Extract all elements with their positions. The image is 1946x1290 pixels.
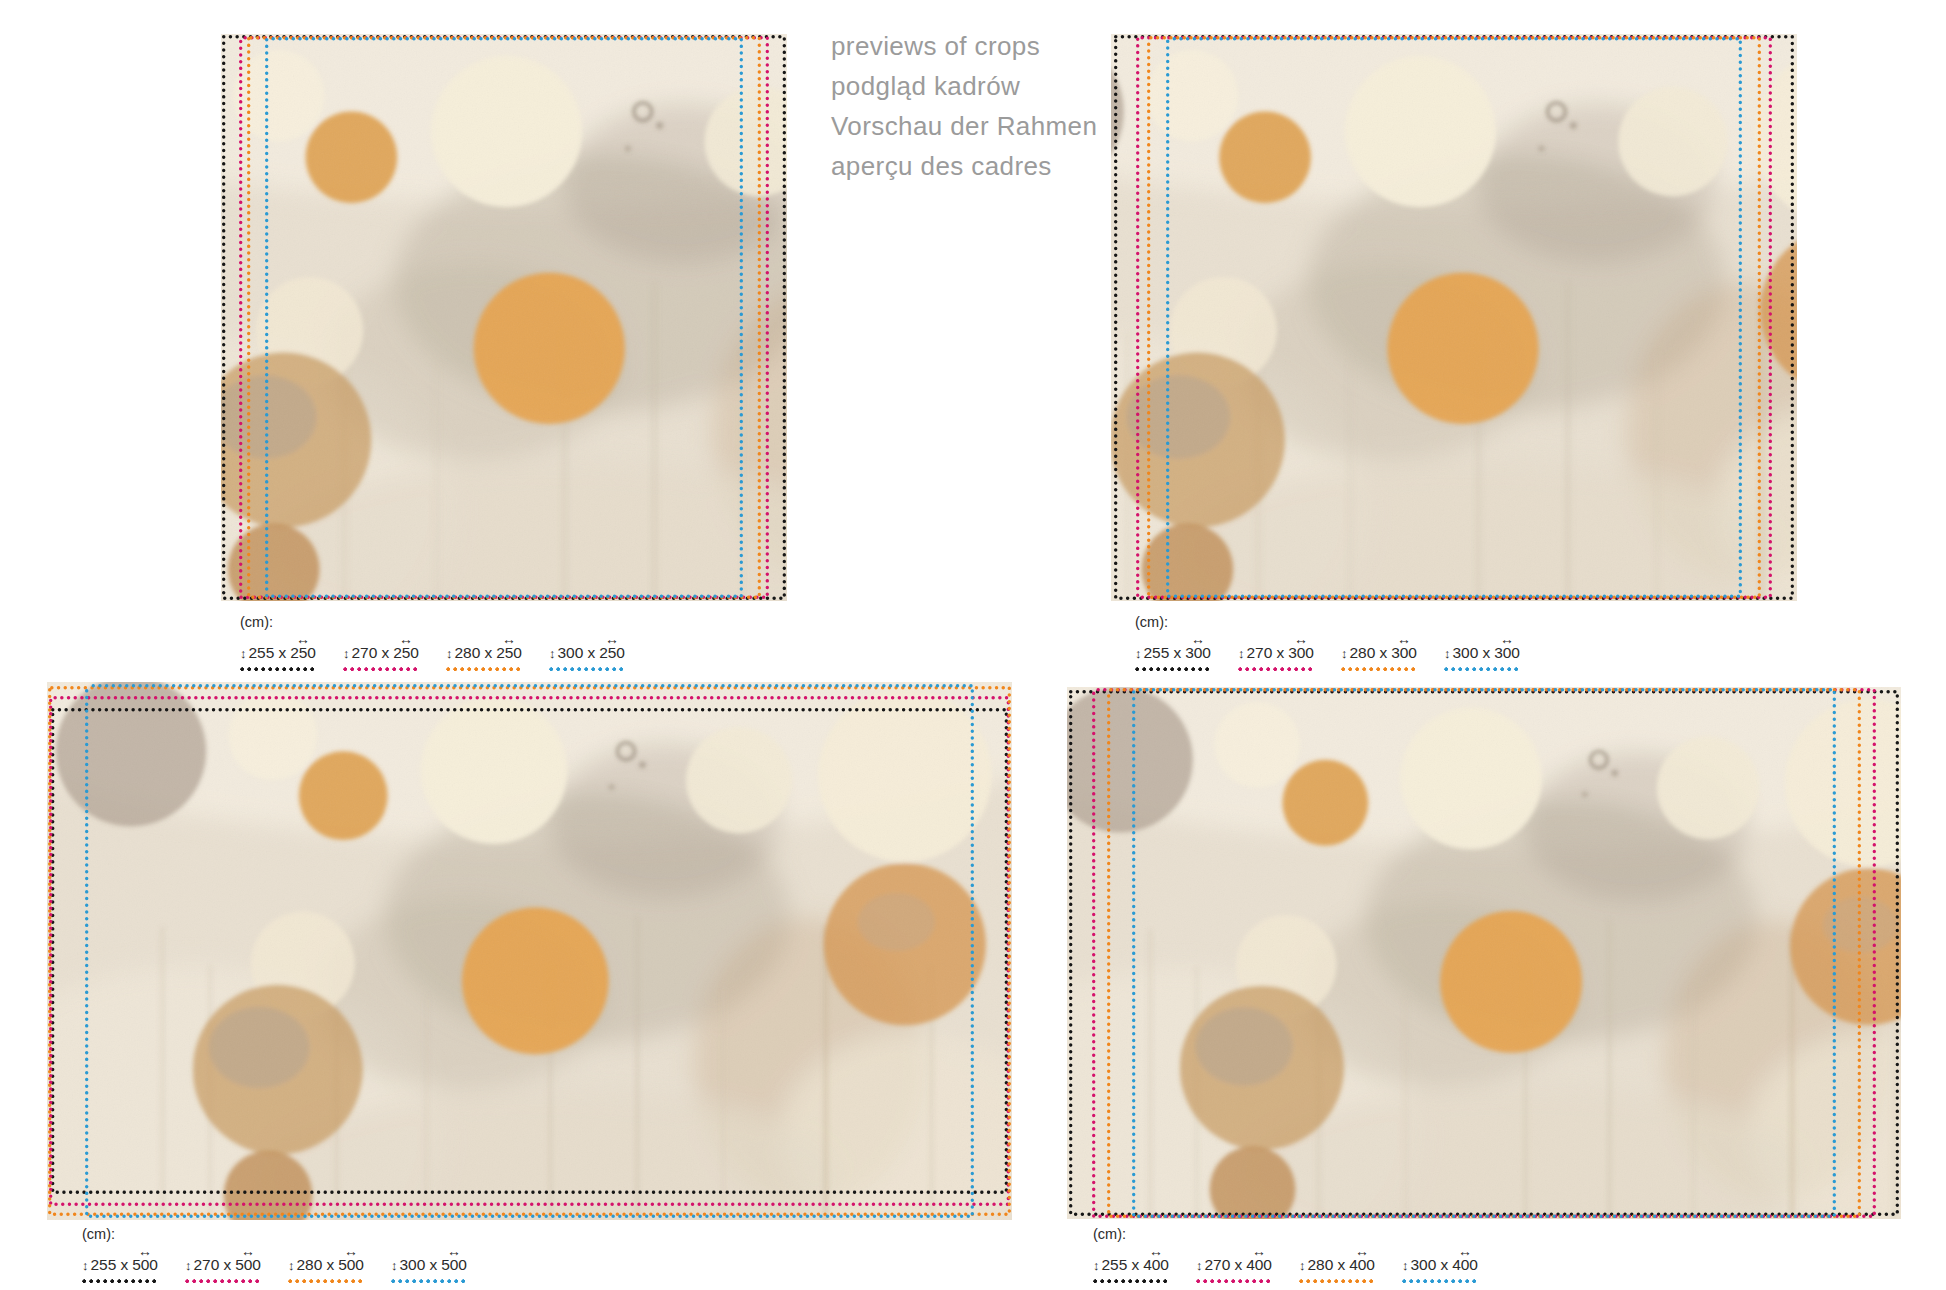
- crop-height-value: 270: [194, 1256, 220, 1274]
- height-arrow-icon: ↕: [1135, 646, 1142, 661]
- crop-color-dots: [549, 667, 625, 672]
- width-arrow-icon: ↔: [1149, 1243, 1163, 1259]
- crop-height-value: 255: [1102, 1256, 1128, 1274]
- crop-size-item: ↕255x↔500: [82, 1256, 158, 1284]
- crop-preview-panel-square-300: [1111, 34, 1797, 601]
- crop-color-dots: [1093, 1279, 1169, 1284]
- size-separator: x: [587, 644, 595, 662]
- height-arrow-icon: ↕: [1238, 646, 1245, 661]
- size-separator: x: [1337, 1256, 1345, 1274]
- width-arrow-icon: ↔: [1500, 631, 1514, 647]
- crop-frames-overlay: [221, 34, 787, 601]
- crop-color-dots: [240, 667, 316, 672]
- crop-preview-panel-wide-400: [1067, 687, 1901, 1219]
- height-arrow-icon: ↕: [1299, 1258, 1306, 1273]
- crop-height-value: 280: [1350, 644, 1376, 662]
- crop-frame-orange: [249, 38, 760, 598]
- crop-height-value: 255: [91, 1256, 117, 1274]
- title-line-de: Vorschau der Rahmen: [831, 106, 1097, 146]
- crop-color-dots: [1299, 1279, 1375, 1284]
- size-separator: x: [381, 644, 389, 662]
- crop-height-value: 270: [352, 644, 378, 662]
- crop-frame-blue: [1168, 39, 1741, 597]
- width-arrow-icon: ↔: [138, 1243, 152, 1259]
- title-line-pl: podgląd kadrów: [831, 66, 1097, 106]
- height-arrow-icon: ↕: [1402, 1258, 1409, 1273]
- height-arrow-icon: ↕: [1341, 646, 1348, 661]
- crop-frame-magenta: [1138, 38, 1771, 598]
- crop-size-item: ↕280x↔500: [288, 1256, 364, 1284]
- height-arrow-icon: ↕: [1196, 1258, 1203, 1273]
- crop-height-value: 300: [1411, 1256, 1437, 1274]
- height-arrow-icon: ↕: [185, 1258, 192, 1273]
- unit-label: (cm):: [82, 1226, 467, 1243]
- crop-color-dots: [1196, 1279, 1272, 1284]
- height-arrow-icon: ↕: [446, 646, 453, 661]
- crop-size-item: ↕300x↔250: [549, 644, 625, 672]
- crop-size-item: ↕270x↔400: [1196, 1256, 1272, 1284]
- width-arrow-icon: ↔: [1191, 631, 1205, 647]
- crop-color-dots: [446, 667, 522, 672]
- crop-size-item: ↕255x↔400: [1093, 1256, 1169, 1284]
- title-block: previews of crops podgląd kadrów Vorscha…: [831, 26, 1097, 186]
- crop-height-value: 280: [297, 1256, 323, 1274]
- size-separator: x: [1482, 644, 1490, 662]
- crop-height-value: 255: [1144, 644, 1170, 662]
- size-separator: x: [1234, 1256, 1242, 1274]
- title-line-fr: aperçu des cadres: [831, 146, 1097, 186]
- crop-size-item: ↕255x↔250: [240, 644, 316, 672]
- size-separator: x: [484, 644, 492, 662]
- size-separator: x: [1379, 644, 1387, 662]
- crop-preview-panel-square-250: [221, 34, 787, 601]
- height-arrow-icon: ↕: [391, 1258, 398, 1273]
- crop-frame-magenta: [51, 698, 1009, 1205]
- crop-color-dots: [1238, 667, 1314, 672]
- crop-size-item: ↕255x↔300: [1135, 644, 1211, 672]
- crop-color-dots: [185, 1279, 261, 1284]
- height-arrow-icon: ↕: [288, 1258, 295, 1273]
- crop-frame-black: [1071, 692, 1898, 1215]
- crop-size-item: ↕270x↔300: [1238, 644, 1314, 672]
- width-arrow-icon: ↔: [447, 1243, 461, 1259]
- crop-frames-overlay: [47, 682, 1012, 1220]
- title-line-en: previews of crops: [831, 26, 1097, 66]
- crop-frame-magenta: [241, 38, 768, 598]
- size-separator: x: [326, 1256, 334, 1274]
- crop-frame-blue: [1134, 690, 1835, 1217]
- unit-label: (cm):: [1135, 614, 1520, 631]
- size-separator: x: [278, 644, 286, 662]
- size-separator: x: [1173, 644, 1181, 662]
- crop-frames-overlay: [1067, 687, 1901, 1219]
- width-arrow-icon: ↔: [1458, 1243, 1472, 1259]
- width-arrow-icon: ↔: [1397, 631, 1411, 647]
- size-separator: x: [1131, 1256, 1139, 1274]
- size-legend: (cm):↕255x↔300↕270x↔300↕280x↔300↕300x↔30…: [1135, 614, 1520, 672]
- size-legend: (cm):↕255x↔250↕270x↔250↕280x↔250↕300x↔25…: [240, 614, 625, 672]
- width-arrow-icon: ↔: [296, 631, 310, 647]
- crop-color-dots: [343, 667, 419, 672]
- crop-height-value: 280: [455, 644, 481, 662]
- crop-height-value: 255: [249, 644, 275, 662]
- crop-height-value: 300: [558, 644, 584, 662]
- crop-frame-magenta: [1094, 690, 1875, 1217]
- crop-color-dots: [1402, 1279, 1478, 1284]
- width-arrow-icon: ↔: [605, 631, 619, 647]
- crop-size-item: ↕300x↔300: [1444, 644, 1520, 672]
- width-arrow-icon: ↔: [1355, 1243, 1369, 1259]
- crop-frame-orange: [1109, 690, 1860, 1217]
- height-arrow-icon: ↕: [549, 646, 556, 661]
- crop-frames-overlay: [1111, 34, 1797, 601]
- crop-frame-blue: [87, 686, 973, 1217]
- crop-color-dots: [288, 1279, 364, 1284]
- size-separator: x: [223, 1256, 231, 1274]
- crop-color-dots: [1444, 667, 1520, 672]
- crop-height-value: 300: [1453, 644, 1479, 662]
- crop-height-value: 270: [1247, 644, 1273, 662]
- size-legend: (cm):↕255x↔400↕270x↔400↕280x↔400↕300x↔40…: [1093, 1226, 1478, 1284]
- crop-color-dots: [82, 1279, 158, 1284]
- unit-label: (cm):: [1093, 1226, 1478, 1243]
- crop-preview-panel-wide-500: [47, 682, 1012, 1220]
- height-arrow-icon: ↕: [240, 646, 247, 661]
- width-arrow-icon: ↔: [1294, 631, 1308, 647]
- crop-size-item: ↕270x↔250: [343, 644, 419, 672]
- width-arrow-icon: ↔: [241, 1243, 255, 1259]
- unit-label: (cm):: [240, 614, 625, 631]
- crop-color-dots: [391, 1279, 467, 1284]
- crop-size-item: ↕270x↔500: [185, 1256, 261, 1284]
- height-arrow-icon: ↕: [82, 1258, 89, 1273]
- size-separator: x: [1440, 1256, 1448, 1274]
- crop-frame-orange: [50, 688, 1010, 1215]
- crop-frame-black: [224, 37, 785, 599]
- height-arrow-icon: ↕: [1444, 646, 1451, 661]
- crop-color-dots: [1341, 667, 1417, 672]
- crop-height-value: 300: [400, 1256, 426, 1274]
- width-arrow-icon: ↔: [344, 1243, 358, 1259]
- size-separator: x: [120, 1256, 128, 1274]
- width-arrow-icon: ↔: [399, 631, 413, 647]
- crop-size-item: ↕300x↔500: [391, 1256, 467, 1284]
- height-arrow-icon: ↕: [1093, 1258, 1100, 1273]
- crop-height-value: 270: [1205, 1256, 1231, 1274]
- crop-size-item: ↕300x↔400: [1402, 1256, 1478, 1284]
- crop-frame-orange: [1149, 38, 1760, 598]
- crop-frame-black: [1116, 37, 1793, 599]
- crop-height-value: 280: [1308, 1256, 1334, 1274]
- crop-frame-blue: [267, 39, 742, 597]
- height-arrow-icon: ↕: [343, 646, 350, 661]
- size-separator: x: [429, 1256, 437, 1274]
- crop-frame-black: [53, 710, 1007, 1193]
- crop-color-dots: [1135, 667, 1211, 672]
- size-separator: x: [1276, 644, 1284, 662]
- crop-size-item: ↕280x↔400: [1299, 1256, 1375, 1284]
- crop-size-item: ↕280x↔300: [1341, 644, 1417, 672]
- crop-size-item: ↕280x↔250: [446, 644, 522, 672]
- width-arrow-icon: ↔: [1252, 1243, 1266, 1259]
- size-legend: (cm):↕255x↔500↕270x↔500↕280x↔500↕300x↔50…: [82, 1226, 467, 1284]
- width-arrow-icon: ↔: [502, 631, 516, 647]
